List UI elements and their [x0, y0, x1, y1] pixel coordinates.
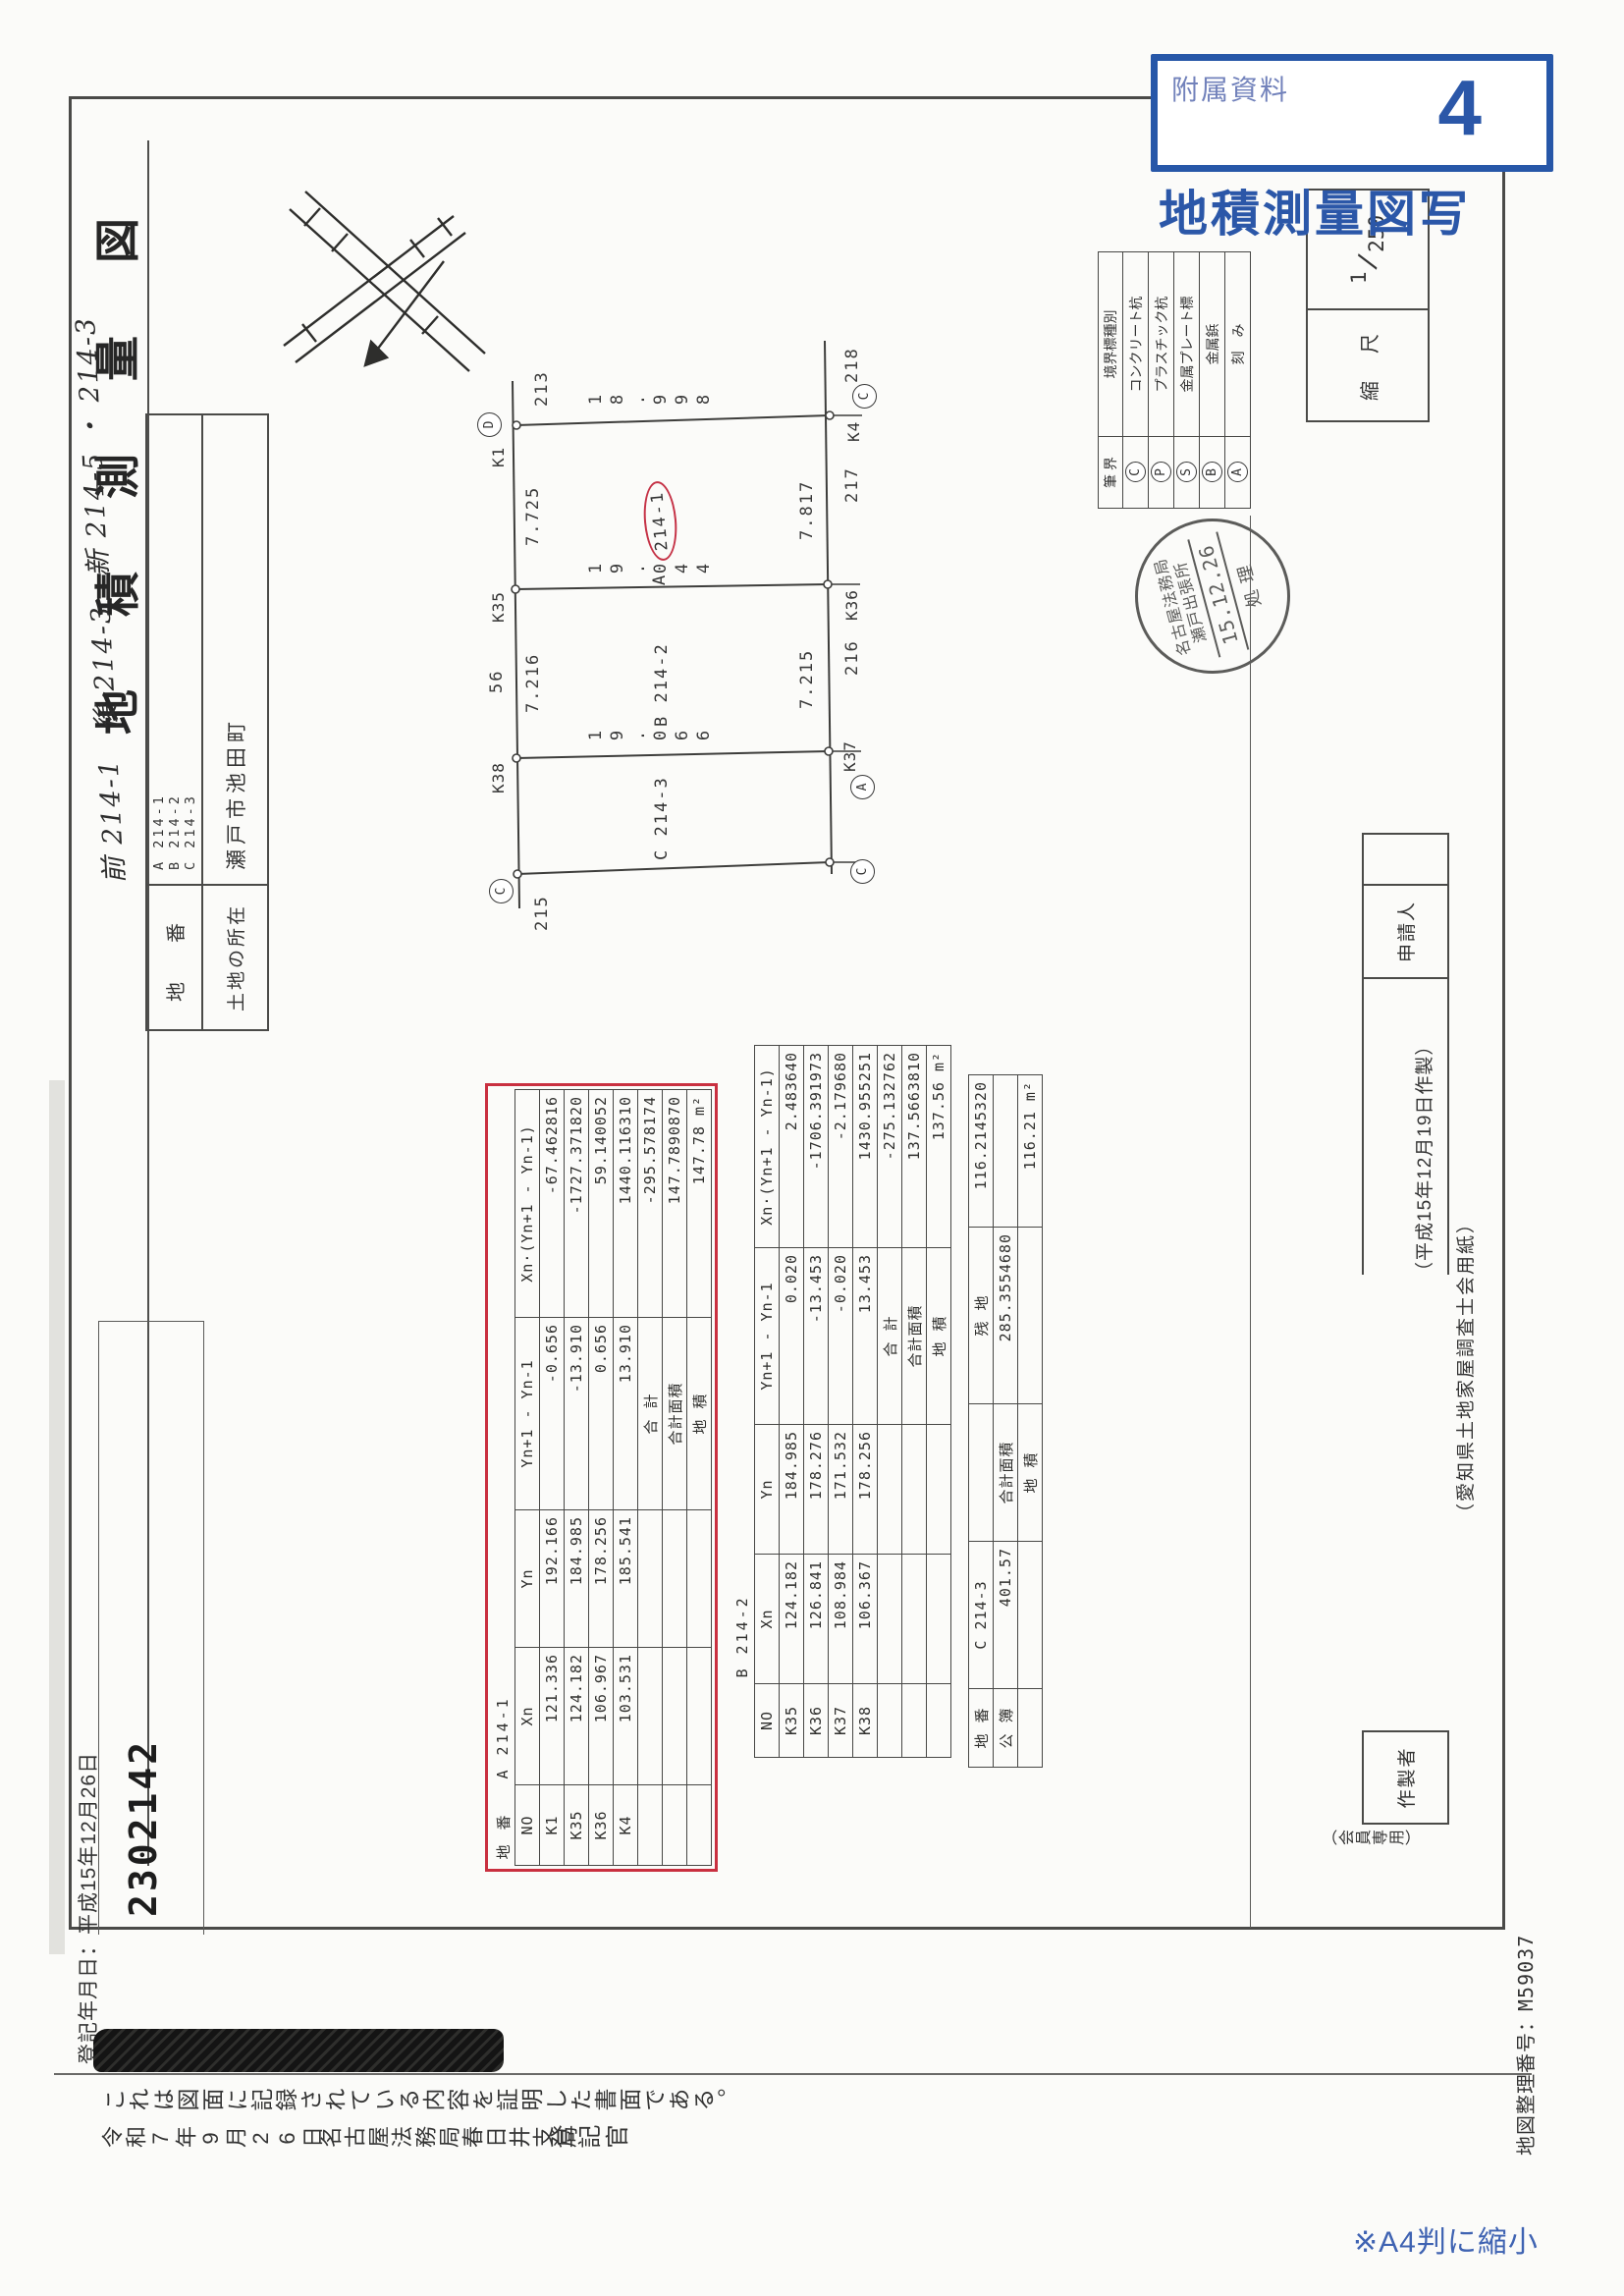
marker-c-topleft-icon: C [489, 879, 514, 903]
table-row: 地 積147.78 m² [687, 1089, 712, 1865]
table-row: K36106.967178.2560.65659.140052 [589, 1089, 614, 1865]
table-cell: 残 地 [969, 1228, 994, 1404]
scale-numerator: 1 [1347, 271, 1371, 284]
table-cell [927, 1425, 951, 1555]
a4-reduction-note: ※A4判に縮小 [1353, 2217, 1539, 2261]
coordinate-table-a: 地 番 A 214-1 NO Xn Yn Yn+1 - Yn-1 Xn·(Yn+… [491, 1089, 712, 1866]
legend-row: Cコンクリート杭 [1123, 252, 1149, 509]
table-row: 地 積137.56 m² [927, 1045, 951, 1757]
table-cell: 地 積 [687, 1318, 712, 1510]
neighbor-213: 213 [532, 370, 552, 407]
table-cell: 184.985 [780, 1425, 804, 1555]
table-cell [902, 1425, 927, 1555]
parcel-number-values: A 214-1 B 214-2 C 214-3 [147, 415, 203, 884]
table-row: K37108.984171.532-0.020-2.179680 [829, 1045, 853, 1757]
applicant-label: 申請人 [1392, 901, 1419, 962]
col-ydiff: Yn+1 - Yn-1 [515, 1318, 540, 1510]
parcel-number-label: 地 番 [147, 884, 203, 1029]
edge-left [517, 862, 830, 874]
table-cell: 1430.955251 [853, 1045, 878, 1247]
marker-a-icon: A [850, 775, 875, 799]
col-xn: Xn [515, 1648, 540, 1785]
table-cell [1018, 1228, 1043, 1404]
attachment-label: 附属資料 [1171, 69, 1289, 108]
dim-7215: 7.215 [797, 649, 817, 709]
certificate-page: 登記年月日：平成15年12月26日 2302142 これは図面に記録されている内… [0, 0, 1624, 2296]
applicant-label-cell: 申請人 [1362, 884, 1449, 979]
table-cell [638, 1785, 663, 1866]
parcel-a-prefix: A [650, 574, 670, 585]
table-cell: 126.841 [804, 1555, 829, 1684]
top-boundary [513, 381, 519, 908]
redacted-area [93, 2029, 504, 2072]
table-b-title-row: B 214-2 [731, 1045, 755, 1757]
legend-mark-a: A [1225, 437, 1251, 509]
col-yn: Yn [515, 1510, 540, 1648]
table-cell [1018, 1689, 1043, 1768]
table-cell: 147.7890870 [663, 1089, 687, 1317]
marker-d-icon: D [477, 412, 502, 437]
parcel-label-a: A 214-1 [644, 481, 677, 585]
table-a-title-row: 地 番 A 214-1 [491, 1089, 515, 1865]
col-ydiff: Yn+1 - Yn-1 [755, 1248, 780, 1425]
table-cell: 124.182 [565, 1648, 589, 1785]
table-cell [878, 1684, 902, 1758]
col-yn: Yn [755, 1425, 780, 1555]
neighbor-218: 218 [842, 347, 862, 383]
legend-mark-c: C [1123, 437, 1149, 509]
preparer-label: 作製者 [1392, 1747, 1419, 1809]
legend-row: S金属プレート標 [1174, 252, 1200, 509]
table-cell: 178.256 [853, 1425, 878, 1555]
col-product: Xn·(Yn+1 - Yn-1) [515, 1089, 540, 1317]
point-k35: K35 [489, 591, 508, 623]
table-cell: 合計面積 [994, 1404, 1018, 1542]
table-cell [878, 1425, 902, 1555]
table-cell: 地 積 [927, 1248, 951, 1425]
parcel-label-c: C 214-3 [652, 776, 672, 860]
table-cell: 13.453 [853, 1248, 878, 1425]
table-row: 合計面積137.5663810 [902, 1045, 927, 1757]
table-row: K36126.841178.276-13.453-1706.391973 [804, 1045, 829, 1757]
table-cell: 285.3554680 [994, 1228, 1018, 1404]
table-cell [902, 1684, 927, 1758]
attachment-box: 附属資料 4 [1151, 54, 1553, 172]
parcel-label-b: B 214-2 [652, 642, 672, 727]
legend-header-right: 境界標種別 [1099, 252, 1123, 437]
table-cell: K1 [540, 1785, 565, 1866]
table-cell: K36 [804, 1684, 829, 1758]
dim-18998: 18.998 [586, 390, 763, 410]
table-row: K38106.367178.25613.4531430.955251 [853, 1045, 878, 1757]
neighbor-215: 215 [532, 895, 552, 931]
point-k4: K4 [844, 421, 863, 442]
table-cell: -0.656 [540, 1318, 565, 1510]
table-cell: 178.256 [589, 1510, 614, 1648]
preparer-label-cell: 作製者 [1362, 1730, 1449, 1825]
legend-header-row: 筆 界 境界標種別 [1099, 252, 1123, 509]
table-cell: 147.78 m² [687, 1089, 712, 1317]
dim-7725: 7.725 [523, 486, 543, 546]
table-cell: 137.5663810 [902, 1045, 927, 1247]
table-b-spacer [731, 1684, 755, 1758]
table-cell: 1440.116310 [614, 1089, 638, 1317]
table-row: 公 簿401.57合計面積285.3554680 [994, 1075, 1018, 1768]
copy-title: 地積測量図写 [1159, 175, 1471, 246]
neighbor-216: 216 [842, 639, 862, 676]
table-cell [878, 1555, 902, 1684]
point-k37: K37 [840, 740, 859, 772]
map-serial-number: 地図整理番号：M59037 [1510, 1935, 1539, 2156]
table-b-header-row: NO Xn Yn Yn+1 - Yn-1 Xn·(Yn+1 - Yn-1) [755, 1045, 780, 1757]
table-cell: -1727.371820 [565, 1089, 589, 1317]
table-cell: -295.578174 [638, 1089, 663, 1317]
table-cell: 0.020 [780, 1248, 804, 1425]
table-cell: 401.57 [994, 1542, 1018, 1689]
member-only-note: （会員専用） [1322, 1829, 1459, 1852]
scale-label: 縮 尺 [1308, 308, 1428, 420]
parcel-b-prefix: B [652, 715, 672, 727]
legend-name: 金属鋲 [1200, 252, 1225, 437]
table-cell [927, 1684, 951, 1758]
boundary-legend: 筆 界 境界標種別 Cコンクリート杭 Pプラスチック杭 S金属プレート標 B金属… [1098, 251, 1251, 509]
table-cell: 2.483640 [780, 1045, 804, 1247]
table-cell [927, 1555, 951, 1684]
table-row: K35124.182184.9850.0202.483640 [780, 1045, 804, 1757]
dim-7216: 7.216 [523, 653, 543, 713]
made-date-note: （平成15年12月19日作製） [1410, 1036, 1436, 1281]
edge-k38-k37 [516, 751, 829, 758]
applicant-side-cell [1362, 833, 1449, 888]
neighbor-217: 217 [842, 466, 862, 503]
table-row: 地 積116.21 m² [1018, 1075, 1043, 1768]
table-cell: K35 [780, 1684, 804, 1758]
table-cell: 184.985 [565, 1510, 589, 1648]
table-cell: 公 簿 [994, 1689, 1018, 1768]
point-k36: K36 [842, 589, 861, 621]
parcel-drawing [245, 185, 893, 941]
table-cell [1018, 1542, 1043, 1689]
table-cell: 地 番 [969, 1689, 994, 1768]
table-cell: 合計面積 [902, 1248, 927, 1425]
table-cell [687, 1510, 712, 1648]
coordinate-table-b: B 214-2 NO Xn Yn Yn+1 - Yn-1 Xn·(Yn+1 - … [731, 1045, 951, 1758]
table-cell: -275.132762 [878, 1045, 902, 1247]
table-row: 地 番C 214-3残 地116.2145320 [969, 1075, 994, 1768]
table-cell [638, 1648, 663, 1785]
neighbor-56: 56 [487, 670, 507, 693]
sheet-edge-line [54, 2073, 1532, 2075]
table-cell: 116.21 m² [1018, 1075, 1043, 1228]
table-cell [663, 1648, 687, 1785]
table-cell: -13.453 [804, 1248, 829, 1425]
table-cell: 137.56 m² [927, 1045, 951, 1247]
table-cell: 13.910 [614, 1318, 638, 1510]
receipt-number: 2302142 [122, 1739, 165, 1917]
parcel-c: C 214-3 [183, 415, 198, 870]
table-a-header-row: NO Xn Yn Yn+1 - Yn-1 Xn·(Yn+1 - Yn-1) [515, 1089, 540, 1865]
table-cell: -0.020 [829, 1248, 853, 1425]
left-edge-shadow [49, 1080, 65, 1954]
table-row: 合計面積147.7890870 [663, 1089, 687, 1865]
table-row: K4103.531185.54113.9101440.116310 [614, 1089, 638, 1865]
marker-c-k4-icon: C [852, 384, 877, 409]
table-cell: 178.276 [804, 1425, 829, 1555]
legend-name: コンクリート杭 [1123, 252, 1149, 437]
table-cell: 192.166 [540, 1510, 565, 1648]
parcel-c-number: 214-3 [652, 776, 672, 836]
table-row: 合 計-275.132762 [878, 1045, 902, 1757]
table-row: 合 計-295.578174 [638, 1089, 663, 1865]
table-cell [687, 1648, 712, 1785]
table-cell: 59.140052 [589, 1089, 614, 1317]
table-cell: 171.532 [829, 1425, 853, 1555]
dim-19066: 19.066 [586, 726, 763, 745]
parcel-b: B 214-2 [167, 415, 183, 870]
table-cell: K37 [829, 1684, 853, 1758]
table-cell: 合 計 [878, 1248, 902, 1425]
table-row: K35124.182184.985-13.910-1727.371820 [565, 1089, 589, 1865]
table-cell: 合計面積 [663, 1318, 687, 1510]
table-cell [994, 1075, 1018, 1228]
legend-mark-p: P [1149, 437, 1174, 509]
table-cell: -13.910 [565, 1318, 589, 1510]
table-cell: 合 計 [638, 1318, 663, 1510]
legend-mark-b: B [1200, 437, 1225, 509]
col-product: Xn·(Yn+1 - Yn-1) [755, 1045, 780, 1247]
point-k38: K38 [489, 762, 508, 793]
table-cell [902, 1555, 927, 1684]
parcel-b-number: 214-2 [652, 642, 672, 702]
legend-mark-s: S [1174, 437, 1200, 509]
legend-row: B金属鋲 [1200, 252, 1225, 509]
table-cell [969, 1404, 994, 1542]
table-row: K1121.336192.166-0.656-67.462816 [540, 1089, 565, 1865]
table-cell: 地 積 [1018, 1404, 1043, 1542]
parcel-a: A 214-1 [151, 415, 167, 870]
legend-row: A刻 み [1225, 252, 1251, 509]
table-a-jiban: 地 番 [491, 1785, 515, 1866]
table-a-title: A 214-1 [491, 1089, 515, 1784]
dim-7817: 7.817 [797, 480, 817, 540]
table-cell: C 214-3 [969, 1542, 994, 1689]
table-cell: -67.462816 [540, 1089, 565, 1317]
table-a-redbox: 地 番 A 214-1 NO Xn Yn Yn+1 - Yn-1 Xn·(Yn+… [485, 1083, 718, 1872]
table-cell: K36 [589, 1785, 614, 1866]
table-cell [663, 1785, 687, 1866]
table-cell: 108.984 [829, 1555, 853, 1684]
certification-officer: 登記官 [550, 2122, 658, 2157]
certification-statement: これは図面に記録されている内容を証明した書面である。 [103, 2085, 790, 2118]
table-cell: -1706.391973 [804, 1045, 829, 1247]
col-xn: Xn [755, 1555, 780, 1684]
bottom-boundary [825, 341, 832, 874]
table-cell: 0.656 [589, 1318, 614, 1510]
col-no: NO [515, 1785, 540, 1866]
table-cell: -2.179680 [829, 1045, 853, 1247]
table-b-title: B 214-2 [731, 1045, 755, 1683]
table-cell [687, 1785, 712, 1866]
legend-row: Pプラスチック杭 [1149, 252, 1174, 509]
legend-name: プラスチック杭 [1149, 252, 1174, 437]
table-cell: 116.2145320 [969, 1075, 994, 1228]
table-cell: 106.967 [589, 1648, 614, 1785]
point-k1: K1 [489, 447, 508, 467]
table-cell: K4 [614, 1785, 638, 1866]
table-cell: K35 [565, 1785, 589, 1866]
table-cell [638, 1510, 663, 1648]
legend-name: 金属プレート標 [1174, 252, 1200, 437]
table-cell: K38 [853, 1684, 878, 1758]
edge-k1-k4 [516, 415, 830, 425]
table-cell: 185.541 [614, 1510, 638, 1648]
attachment-number: 4 [1438, 63, 1483, 153]
area-table-c: 地 番C 214-3残 地116.2145320公 簿401.57合計面積285… [968, 1074, 1043, 1768]
legend-name: 刻 み [1225, 252, 1251, 437]
parcel-c-prefix: C [652, 848, 672, 860]
paper-note: （愛知県土地家屋調査士会用紙） [1451, 1213, 1478, 1522]
legend-header-left: 筆 界 [1099, 437, 1123, 509]
table-cell: 121.336 [540, 1648, 565, 1785]
marker-c-botleft-icon: C [850, 859, 875, 884]
table-cell [663, 1510, 687, 1648]
map-field-divider [1250, 516, 1251, 1928]
scanned-survey-map: 登記年月日：平成15年12月26日 2302142 これは図面に記録されている内… [0, 0, 1624, 2296]
table-cell: 124.182 [780, 1555, 804, 1684]
road-crossing-icon [284, 191, 485, 371]
parcel-a-number-redcircle: 214-1 [641, 480, 680, 563]
table-cell: 106.367 [853, 1555, 878, 1684]
col-no: NO [755, 1684, 780, 1758]
table-cell: 103.531 [614, 1648, 638, 1785]
